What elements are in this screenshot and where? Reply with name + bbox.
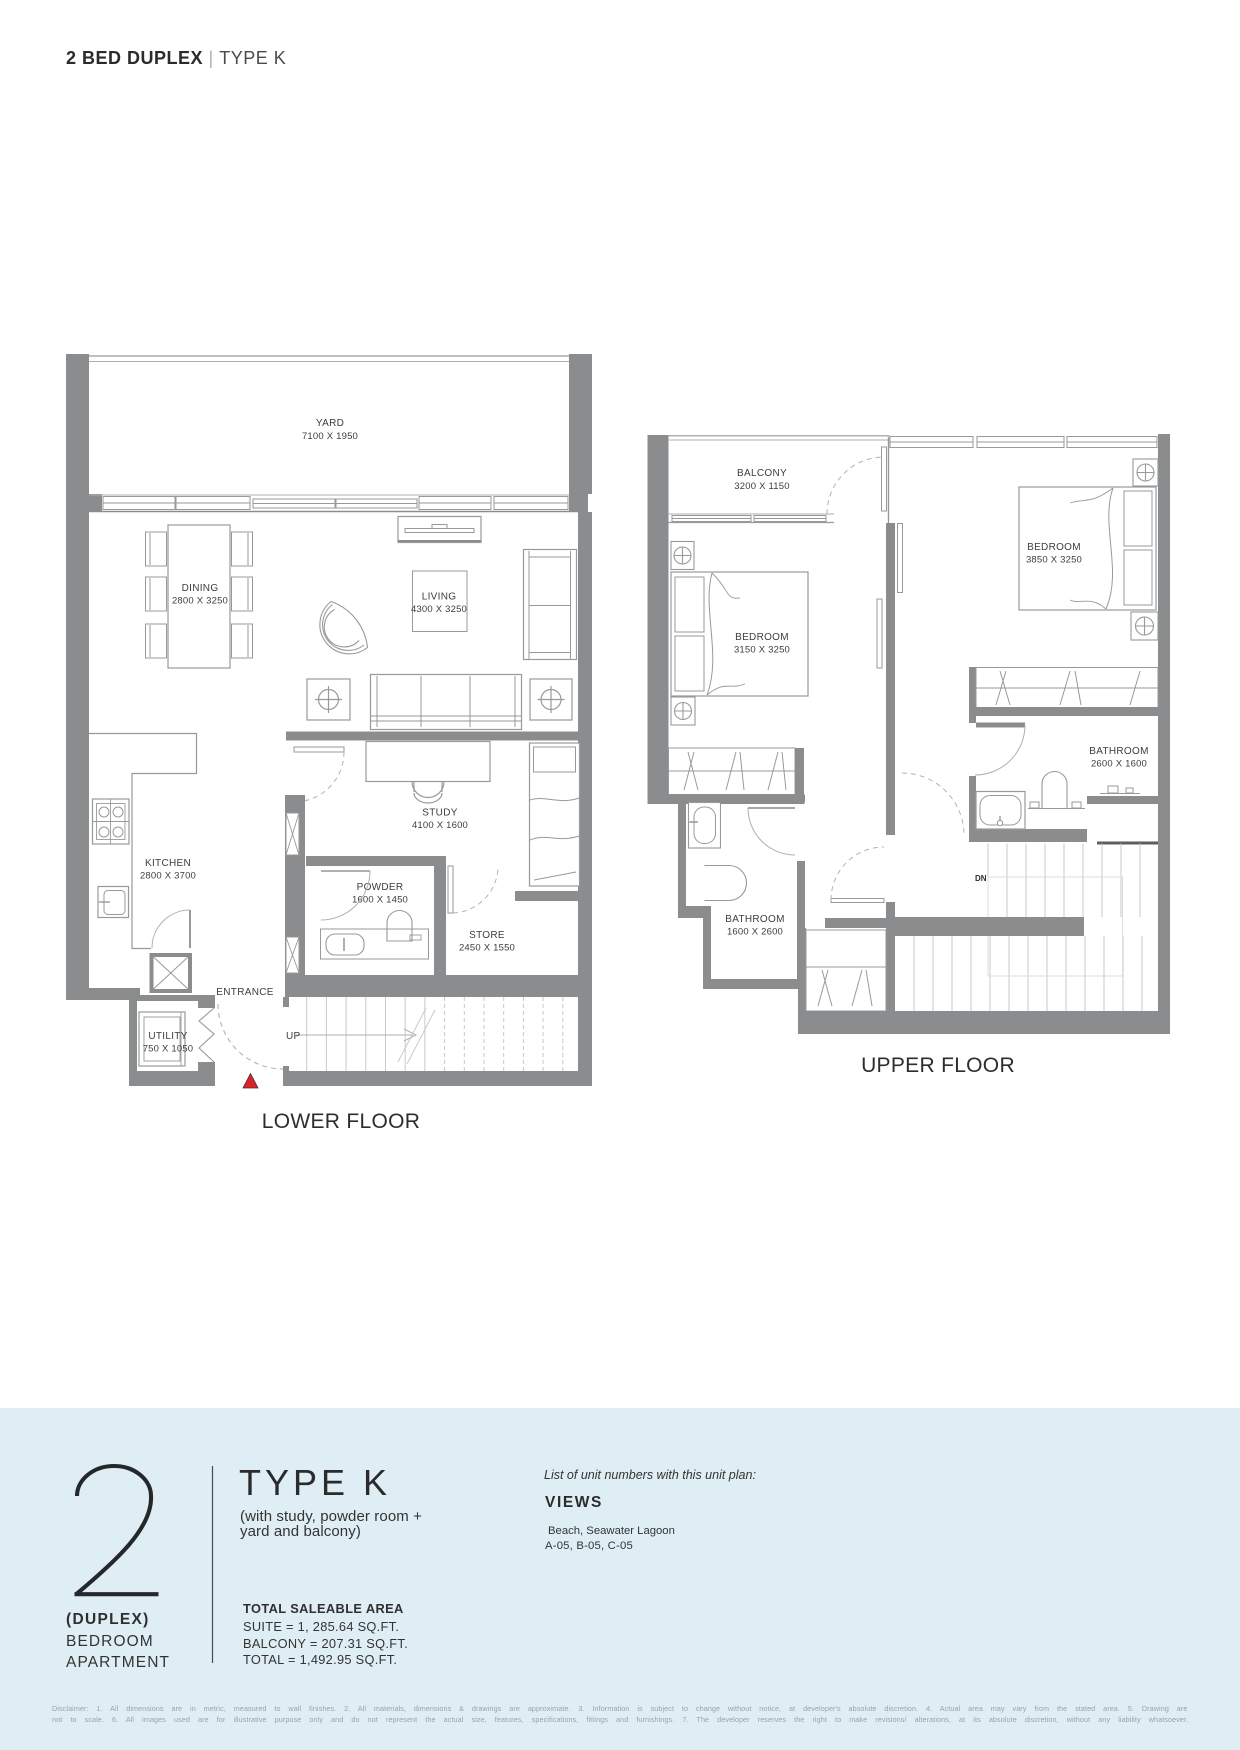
svg-text:7100 X 1950: 7100 X 1950 <box>302 431 358 442</box>
svg-text:2450 X 1550: 2450 X 1550 <box>459 943 515 954</box>
svg-text:3850 X 3250: 3850 X 3250 <box>1026 555 1082 566</box>
svg-text:POWDER: POWDER <box>357 882 404 893</box>
svg-text:BEDROOM: BEDROOM <box>735 632 789 643</box>
svg-text:2800 X 3700: 2800 X 3700 <box>140 871 196 882</box>
svg-text:KITCHEN: KITCHEN <box>145 858 191 869</box>
svg-text:4100 X 1600: 4100 X 1600 <box>412 820 468 831</box>
svg-text:3150 X 3250: 3150 X 3250 <box>734 645 790 656</box>
svg-text:BALCONY: BALCONY <box>737 468 787 479</box>
svg-text:750 X 1050: 750 X 1050 <box>143 1044 194 1055</box>
svg-text:BEDROOM: BEDROOM <box>1027 542 1081 553</box>
svg-text:DINING: DINING <box>182 583 219 594</box>
svg-text:LIVING: LIVING <box>422 592 457 603</box>
svg-text:BATHROOM: BATHROOM <box>725 914 784 925</box>
svg-text:UPPER FLOOR: UPPER FLOOR <box>861 1054 1015 1077</box>
svg-text:1600 X 2600: 1600 X 2600 <box>727 927 783 938</box>
svg-text:2600 X 1600: 2600 X 1600 <box>1091 759 1147 770</box>
svg-text:YARD: YARD <box>316 418 344 429</box>
svg-text:2800 X 3250: 2800 X 3250 <box>172 596 228 607</box>
svg-text:ENTRANCE: ENTRANCE <box>216 987 273 998</box>
svg-text:DN: DN <box>975 874 987 883</box>
svg-text:BATHROOM: BATHROOM <box>1089 746 1148 757</box>
svg-text:LOWER FLOOR: LOWER FLOOR <box>262 1110 420 1133</box>
svg-text:STUDY: STUDY <box>422 808 457 819</box>
svg-text:UP: UP <box>286 1031 301 1042</box>
svg-text:STORE: STORE <box>469 930 505 941</box>
svg-text:UTILITY: UTILITY <box>148 1031 187 1042</box>
svg-text:4300 X 3250: 4300 X 3250 <box>411 604 467 615</box>
svg-text:3200 X 1150: 3200 X 1150 <box>734 481 789 492</box>
